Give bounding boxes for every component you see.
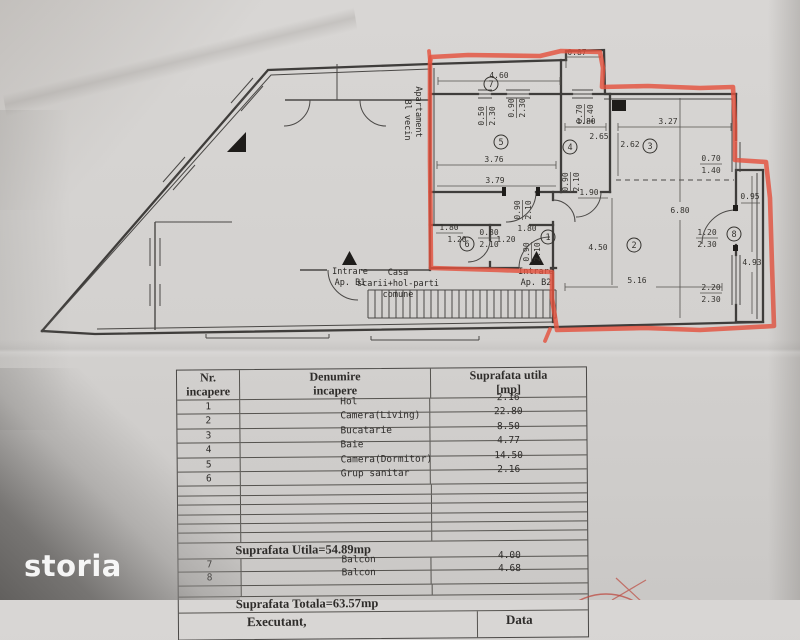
svg-text:Bl vecin: Bl vecin <box>402 100 412 141</box>
svg-text:2.30: 2.30 <box>518 98 527 117</box>
dim-room6-w: 1.80 <box>439 223 458 232</box>
dim-room2-w1: 4.50 <box>588 243 607 252</box>
header-suprafata-line1: Suprafata utila <box>431 369 586 383</box>
entrance-b2-label2: Ap. B2 <box>521 278 552 288</box>
fraction-win3: 0.701.40 <box>700 154 722 175</box>
dim-room2-w2: 5.16 <box>627 276 646 285</box>
svg-text:2.10: 2.10 <box>524 200 533 219</box>
row-area: 4.00 <box>498 550 521 563</box>
fraction-door-b: 0.902.10 <box>522 242 542 262</box>
header-nr-line2: incapere <box>177 385 239 399</box>
svg-text:0.70: 0.70 <box>701 154 720 163</box>
row-area: 2.16 <box>497 463 520 477</box>
row-name: Hol <box>340 395 357 409</box>
svg-text:2.30: 2.30 <box>488 106 497 125</box>
svg-text:1: 1 <box>545 233 550 243</box>
fraction-win5a: 0.502.30 <box>477 106 497 126</box>
row-nr: 7 <box>178 559 240 572</box>
dim-balcony7: 4.60 <box>489 71 508 80</box>
svg-text:0.90: 0.90 <box>507 98 516 117</box>
svg-text:5: 5 <box>498 138 503 148</box>
footer-row: Executant, Data <box>179 609 588 639</box>
svg-text:0.70: 0.70 <box>575 104 584 123</box>
svg-text:2.30: 2.30 <box>697 240 716 249</box>
stamp-x-mark <box>612 578 646 600</box>
room-number-2: 2 <box>627 238 641 252</box>
dim-room5-w2: 3.79 <box>485 176 504 185</box>
dim-room2-h: 6.80 <box>670 206 689 215</box>
dim-balcony8-h: 4.93 <box>742 258 761 267</box>
row-nr: 4 <box>178 443 240 457</box>
room-number-5: 5 <box>494 135 508 149</box>
svg-text:6: 6 <box>464 240 469 250</box>
row-nr: 8 <box>179 572 241 585</box>
svg-text:8: 8 <box>731 230 736 240</box>
svg-text:2.10: 2.10 <box>572 172 581 191</box>
corner-marker-triangle-icon <box>227 132 246 152</box>
room-number-7: 7 <box>484 77 498 91</box>
room-number-3: 3 <box>643 139 657 153</box>
svg-text:4: 4 <box>567 143 572 153</box>
storia-watermark-logo: storia <box>24 549 122 583</box>
svg-text:1.40: 1.40 <box>701 166 720 175</box>
room-numbers: 1 2 3 4 5 6 7 8 <box>460 77 741 252</box>
row-name: Balcon <box>341 554 375 567</box>
dim-room5-w1: 3.76 <box>484 155 503 164</box>
entrance-b1-triangle-icon <box>342 251 357 265</box>
stairs-label2: scarii+hol-parti <box>357 279 439 289</box>
header-nr: Nr. incapere <box>177 370 239 399</box>
dim-opening: 1.90 <box>579 188 598 197</box>
room-number-4: 4 <box>563 140 577 154</box>
svg-text:2.20: 2.20 <box>701 283 720 292</box>
row-name: Grup sanitar <box>341 467 410 481</box>
svg-text:0.90: 0.90 <box>561 172 570 191</box>
fraction-win2: 2.202.30 <box>700 283 722 304</box>
svg-text:2.30: 2.30 <box>701 295 720 304</box>
svg-text:1.40: 1.40 <box>586 104 595 123</box>
red-stamp: lucrari de <box>528 566 688 600</box>
header-denumire-line2: incapere <box>240 383 430 398</box>
fraction-door-c: 0.902.10 <box>561 172 581 192</box>
row-area: 2.16 <box>497 391 520 405</box>
row-name: Camera(Dormitor) <box>341 452 433 466</box>
row-name: Camera(Living) <box>340 409 420 423</box>
data-label: Data <box>477 610 588 637</box>
dim-room3-d: 2.62 <box>620 140 639 149</box>
shaft-fill <box>612 100 626 111</box>
neighbor-apartment-label: Apartament Bl vecin <box>402 86 423 140</box>
row-nr: 2 <box>177 415 239 429</box>
stairs-label3: comune <box>383 290 414 300</box>
row-area: 4.68 <box>498 563 521 576</box>
svg-text:7: 7 <box>488 80 493 90</box>
svg-text:3: 3 <box>647 142 652 152</box>
fraction-win5b: 0.902.30 <box>507 98 527 118</box>
row-area: 8.50 <box>497 420 520 434</box>
row-area: 14.50 <box>494 448 523 462</box>
svg-text:2.10: 2.10 <box>533 242 542 261</box>
row-nr: 6 <box>178 472 240 486</box>
dim-hall-w1: 1.20 <box>496 235 515 244</box>
table-header-row: Nr. incapere Denumire incapere Suprafata… <box>177 367 586 399</box>
svg-text:2: 2 <box>631 241 636 251</box>
row-name: Baie <box>340 438 363 452</box>
dim-balcony8-w: 0.95 <box>740 192 759 201</box>
row-nr: 3 <box>177 429 239 443</box>
room-number-6: 6 <box>460 237 474 251</box>
row-nr: 5 <box>178 458 240 472</box>
dim-room3-w: 3.27 <box>658 117 677 126</box>
svg-text:0.80: 0.80 <box>479 228 498 237</box>
svg-text:0.90: 0.90 <box>522 242 531 261</box>
fraction-door8: 1.202.30 <box>696 228 718 249</box>
room-number-8: 8 <box>727 227 741 241</box>
dim-hall-w2: 1.80 <box>517 224 536 233</box>
dim-room4-d: 2.65 <box>589 132 608 141</box>
row-area: 4.77 <box>497 434 520 448</box>
svg-text:0.50: 0.50 <box>477 106 486 125</box>
stairs-label1: Casa <box>388 268 408 278</box>
executant-label: Executant, <box>179 611 477 639</box>
entrance-b1-label: Intrare <box>332 267 368 277</box>
svg-text:Apartament: Apartament <box>413 86 423 137</box>
header-denumire: Denumire incapere <box>239 369 430 399</box>
row-name: Bucatarie <box>340 424 392 438</box>
scanned-floorplan-photo: { "watermark": { "logo_text": "storia" }… <box>0 0 800 600</box>
header-nr-line1: Nr. <box>177 371 239 385</box>
svg-text:1.20: 1.20 <box>697 228 716 237</box>
floor-plan: 0.87 4.60 3.76 3.79 1.80 2.65 3.27 2.62 … <box>0 0 800 362</box>
row-name: Balcon <box>342 567 376 580</box>
row-area: 22.80 <box>494 405 523 419</box>
svg-text:2.10: 2.10 <box>479 240 498 249</box>
svg-text:0.90: 0.90 <box>513 200 522 219</box>
row-nr: 1 <box>177 400 239 414</box>
